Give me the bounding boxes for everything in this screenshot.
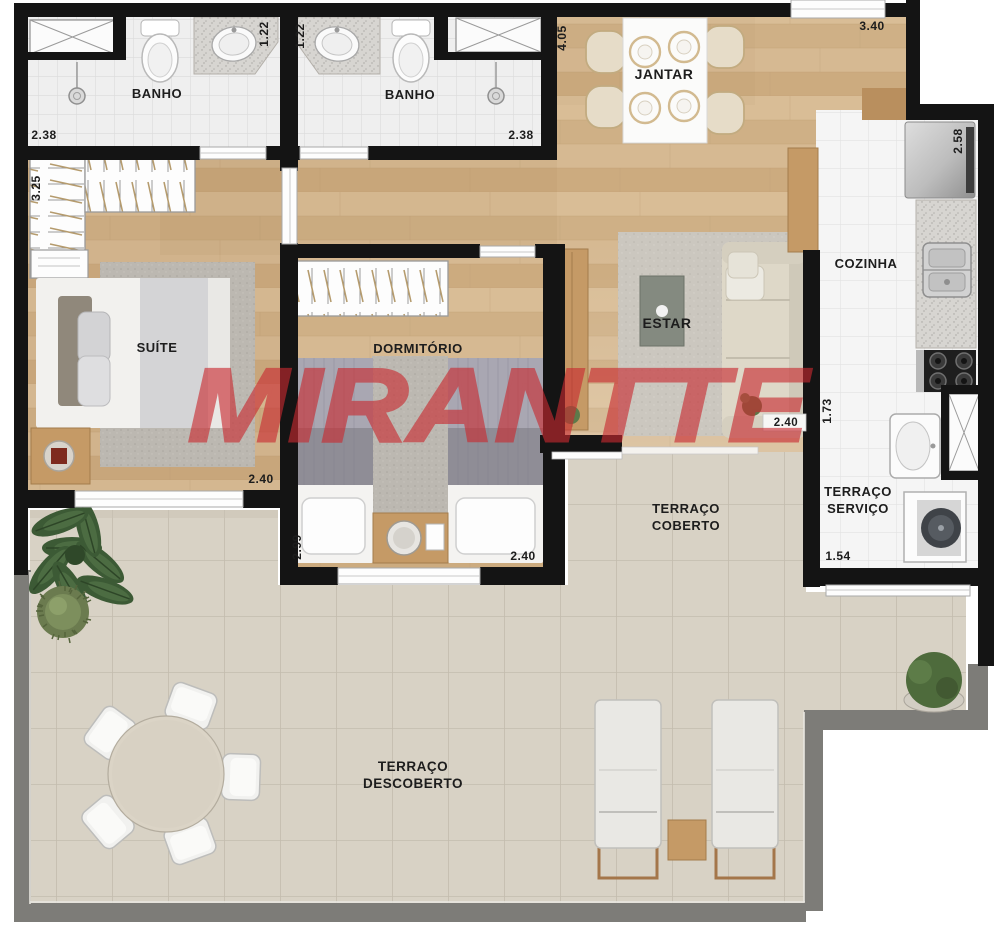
svg-text:TERRAÇO: TERRAÇO [378,759,448,774]
svg-text:BANHO: BANHO [385,87,435,102]
svg-text:BANHO: BANHO [132,86,182,101]
svg-text:3.40: 3.40 [859,19,884,33]
svg-text:1.22: 1.22 [293,23,307,48]
svg-text:2.38: 2.38 [508,128,533,142]
svg-text:ESTAR: ESTAR [643,315,692,331]
svg-text:MIRANTTE: MIRANTTE [188,348,811,464]
svg-text:SUÍTE: SUÍTE [137,340,178,355]
svg-text:2.58: 2.58 [951,128,965,153]
svg-text:TERRAÇO: TERRAÇO [652,501,720,516]
svg-text:2.99: 2.99 [290,534,304,559]
svg-text:1.54: 1.54 [825,549,850,563]
svg-text:1.22: 1.22 [257,21,271,46]
svg-text:TERRAÇO: TERRAÇO [824,484,892,499]
svg-text:JANTAR: JANTAR [635,66,694,82]
svg-text:4.05: 4.05 [555,25,569,50]
svg-text:2.40: 2.40 [510,549,535,563]
svg-text:SERVIÇO: SERVIÇO [827,501,889,516]
svg-text:COBERTO: COBERTO [652,518,720,533]
svg-text:2.40: 2.40 [248,472,273,486]
svg-text:2.38: 2.38 [31,128,56,142]
svg-text:1.73: 1.73 [820,398,834,423]
svg-text:COZINHA: COZINHA [835,256,898,271]
svg-text:3.25: 3.25 [29,175,43,200]
svg-text:DESCOBERTO: DESCOBERTO [363,776,463,791]
